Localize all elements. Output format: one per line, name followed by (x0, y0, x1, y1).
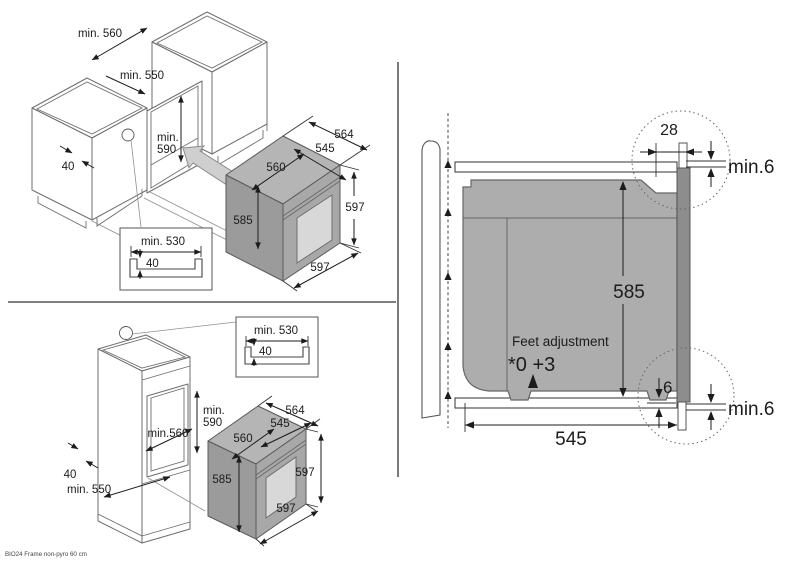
callout-leader-line (132, 322, 236, 334)
dim-niche-depth-label: min. 550 (120, 70, 164, 82)
left-cabinet-drawing (32, 78, 147, 228)
airflow-up-arrow (444, 160, 451, 168)
dim-niche-width-label: min. 560 (78, 28, 122, 40)
cabinet-side-wall (422, 141, 440, 418)
feet-adjustment-range: *0 +3 (508, 354, 555, 376)
channel-depth-label: 40 (146, 258, 159, 270)
dim-bottom-clearance-label: min.6 (728, 399, 774, 420)
frame-bottom-tab (678, 402, 686, 430)
oven-body-side-view (463, 180, 677, 400)
detail-callout-circle (120, 327, 133, 340)
frame-top-tab (679, 143, 687, 168)
dim-niche-depth-label: min. 550 (67, 484, 111, 496)
oven-isometric-top-scene (226, 136, 340, 281)
airflow-up-arrow (444, 272, 451, 280)
bottom-shelf-panel (455, 398, 677, 408)
oven-front-width-label: 597 (310, 262, 329, 274)
oven-top-depth-label: 564 (334, 129, 354, 141)
channel-depth-label: 40 (259, 346, 272, 358)
oven-front-frame (677, 168, 690, 402)
oven-top-width-label: 560 (266, 162, 285, 174)
dim-bottom-gap-label: 6 (663, 378, 672, 397)
airflow-up-arrow (444, 391, 451, 399)
dim-body-height-label: 585 (613, 282, 645, 303)
oven-inner-depth-label: 545 (270, 418, 289, 430)
oven-front-width-label: 597 (276, 503, 295, 515)
oven-isometric-bottom-scene (208, 406, 306, 539)
side-section-scene: 28 min.6 585 Feet adjustment *0 +3 6 (422, 111, 774, 450)
footer-model-note: BIO24 Frame non-pyro 60 cm (5, 551, 87, 558)
airflow-up-arrow (444, 208, 451, 216)
oven-inner-depth-label: 545 (315, 143, 334, 155)
oven-body-height-label: 585 (212, 474, 231, 486)
oven-front-height-label: 597 (345, 202, 364, 214)
channel-detail-inset-bottom: min. 530 40 (236, 317, 318, 377)
airflow-up-arrow (444, 342, 451, 350)
channel-width-label: min. 530 (141, 236, 185, 248)
installation-diagram: min. 560 min. 550 min. 590 40 564 545 56… (0, 0, 796, 563)
channel-detail-inset-top: min. 530 40 (120, 228, 212, 290)
dim-niche-height-label: min. (203, 405, 225, 417)
dim-top-clearance-label: min.6 (728, 157, 774, 178)
channel-width-label: min. 530 (254, 325, 298, 337)
dim-front-rail-label: 40 (62, 161, 75, 173)
dim-front-offset-label: 28 (660, 122, 678, 139)
oven-top-depth-label: 564 (285, 405, 305, 417)
oven-body-height-label: 585 (233, 215, 252, 227)
top-cabinet-scene: min. 560 min. 550 min. 590 40 564 545 56… (32, 12, 370, 291)
dim-niche-height-value: 590 (157, 144, 176, 156)
dim-depth-label: 545 (555, 429, 587, 450)
oven-front-height-label: 597 (295, 467, 314, 479)
dim-front-rail-label: 40 (64, 469, 77, 481)
feet-adjustment-label: Feet adjustment (512, 334, 609, 349)
bottom-column-scene: min. 530 40 min. 590 min.560 40 min. 550 (64, 317, 321, 546)
top-shelf-panel (455, 162, 677, 172)
dim-niche-height-value: 590 (203, 417, 222, 429)
oven-top-width-label: 560 (233, 433, 252, 445)
dim-niche-height-label: min. (157, 132, 179, 144)
installation-manual-page: min. 560 min. 550 min. 590 40 564 545 56… (0, 0, 796, 563)
dim-niche-width-label: min.560 (148, 428, 189, 440)
